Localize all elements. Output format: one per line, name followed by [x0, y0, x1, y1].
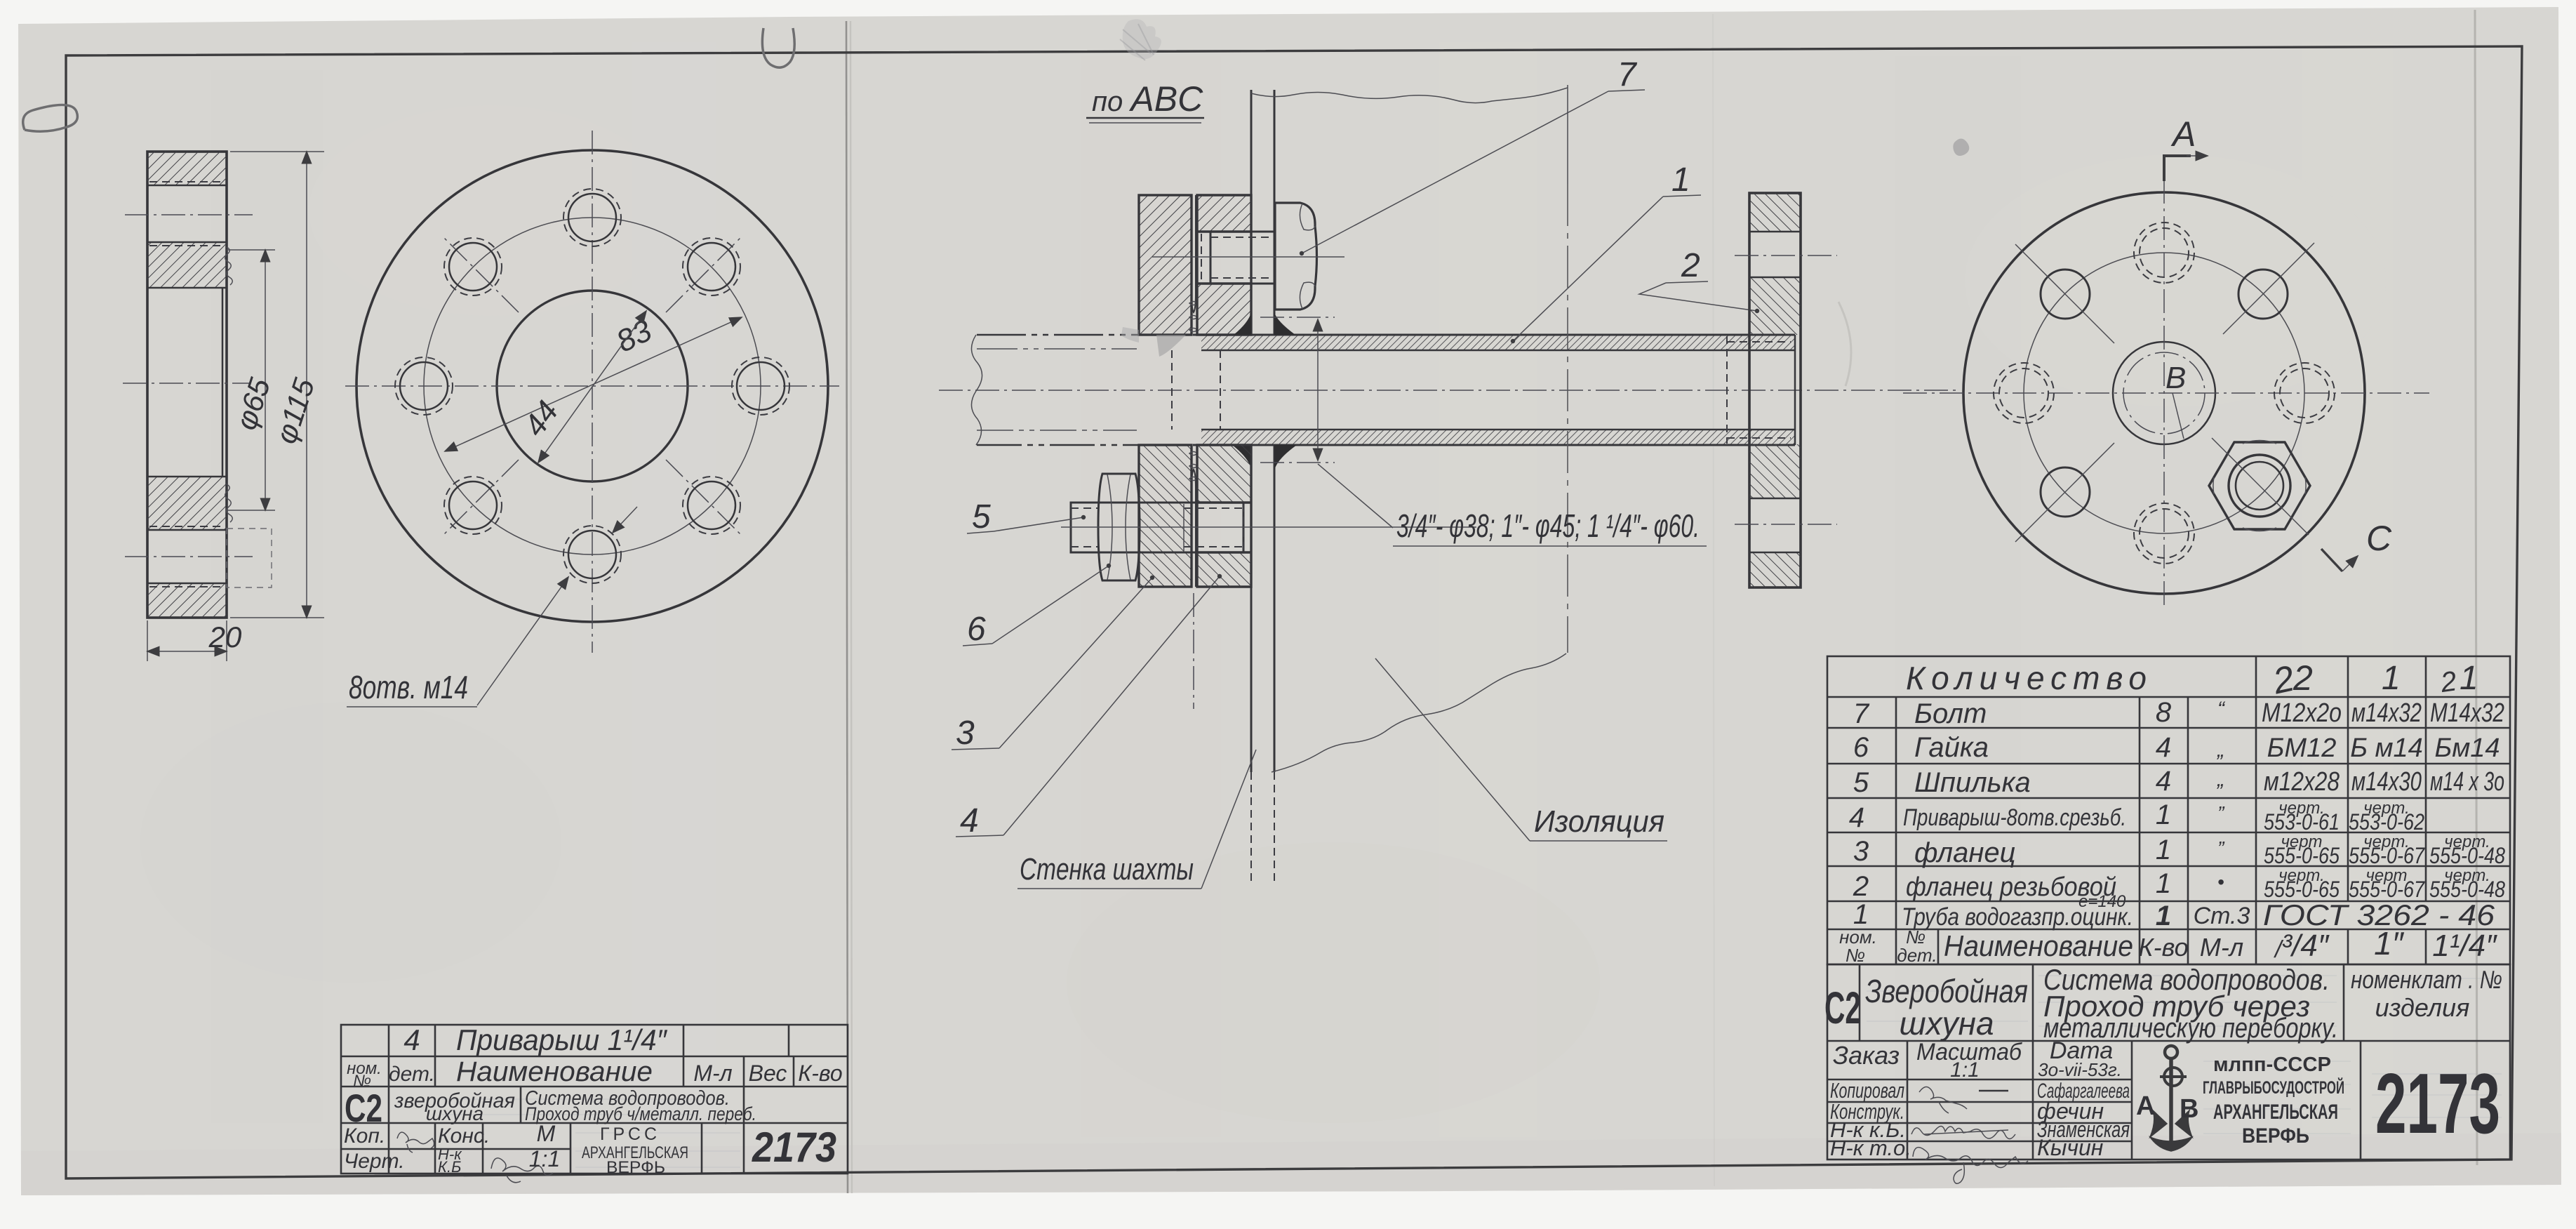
svg-text:Приварыш 1¹/4″: Приварыш 1¹/4″ — [456, 1023, 668, 1056]
svg-text:1: 1 — [1671, 161, 1690, 199]
svg-text:ГЛАВРЫБОСУДОСТРОЙ: ГЛАВРЫБОСУДОСТРОЙ — [2203, 1077, 2344, 1098]
svg-text:фланец: фланец — [1914, 837, 2015, 868]
svg-text:555-0-65: 555-0-65 — [2264, 843, 2340, 868]
svg-text:млпп-СССР: млпп-СССР — [2213, 1054, 2331, 1076]
svg-text:3: 3 — [1853, 836, 1869, 867]
svg-text:2: 2 — [1853, 871, 1869, 902]
svg-text:К-во: К-во — [798, 1061, 842, 1086]
svg-text:ГРСС: ГРСС — [600, 1124, 660, 1144]
svg-text:Вес: Вес — [749, 1061, 787, 1086]
svg-text:A: A — [2136, 1091, 2155, 1121]
svg-text:м14х32: м14х32 — [2351, 698, 2422, 728]
svg-text:Гайка: Гайка — [1914, 732, 1989, 763]
svg-text:Болт: Болт — [1914, 698, 1987, 729]
svg-text:шхуна: шхуна — [1899, 1005, 1994, 1042]
svg-text:1¹/4″: 1¹/4″ — [2432, 929, 2497, 963]
svg-text:М: М — [537, 1121, 556, 1146]
svg-text:1: 1 — [1853, 899, 1869, 930]
svg-text:Ст.3: Ст.3 — [2194, 903, 2250, 929]
svg-text:4: 4 — [960, 802, 979, 839]
svg-text:дет.: дет. — [389, 1063, 435, 1086]
svg-text:7: 7 — [1853, 698, 1870, 729]
svg-text:8: 8 — [2156, 697, 2172, 728]
svg-text:C: C — [2366, 519, 2392, 558]
svg-text:К-во: К-во — [2138, 933, 2188, 962]
svg-text:Стенка шахты: Стенка шахты — [1020, 852, 1194, 886]
svg-text:1: 1 — [2156, 799, 2171, 830]
svg-text:4: 4 — [403, 1023, 420, 1056]
svg-text:Проход труб ч/металл. переб.: Проход труб ч/металл. переб. — [525, 1103, 756, 1124]
svg-text:B: B — [2180, 1094, 2198, 1124]
svg-text:1: 1 — [2460, 660, 2478, 697]
svg-text:Кычин: Кычин — [2037, 1135, 2103, 1160]
svg-text:1: 1 — [2156, 901, 2171, 931]
svg-text:1:1: 1:1 — [1950, 1058, 1980, 1082]
svg-text:555-0-48: 555-0-48 — [2429, 843, 2505, 868]
svg-text:4: 4 — [2156, 766, 2171, 797]
svg-text:5: 5 — [1853, 767, 1869, 798]
svg-text:№: № — [1846, 945, 1865, 966]
svg-text:1: 1 — [2382, 660, 2401, 697]
svg-text:2: 2 — [1681, 247, 1700, 284]
svg-text:М-л: М-л — [2200, 933, 2243, 962]
svg-text:³/4″: ³/4″ — [2282, 929, 2330, 963]
svg-text:1: 1 — [2156, 868, 2171, 899]
svg-text:Конс.: Конс. — [438, 1124, 490, 1148]
svg-text:Наименование: Наименование — [456, 1056, 653, 1087]
svg-text:6: 6 — [1853, 732, 1869, 763]
svg-text:3: 3 — [956, 715, 975, 752]
svg-text:20: 20 — [208, 620, 242, 653]
svg-text:м14х30: м14х30 — [2351, 767, 2422, 797]
svg-text:Коп.: Коп. — [344, 1124, 385, 1148]
svg-text:Зверобойная: Зверобойная — [1865, 973, 2028, 1009]
svg-text:553-0-61: 553-0-61 — [2264, 809, 2340, 835]
svg-text:553-0-62: 553-0-62 — [2349, 809, 2424, 835]
svg-text:Б м14: Б м14 — [2350, 733, 2423, 763]
svg-text:C2: C2 — [345, 1086, 382, 1130]
svg-text:1:1: 1:1 — [529, 1146, 560, 1171]
svg-text:„: „ — [2216, 738, 2224, 762]
svg-text:4: 4 — [1849, 802, 1864, 833]
svg-text:5: 5 — [972, 498, 991, 536]
svg-text:C2: C2 — [1824, 983, 1861, 1033]
svg-text:М12х2о: М12х2о — [2262, 698, 2342, 728]
svg-text:М-л: М-л — [693, 1061, 732, 1086]
svg-text:1″: 1″ — [2374, 925, 2405, 962]
svg-text:Изоляция: Изоляция — [1534, 804, 1664, 839]
svg-text:Бм14: Бм14 — [2434, 733, 2500, 763]
svg-text:Количество: Количество — [1906, 660, 2153, 696]
svg-text:6: 6 — [967, 611, 986, 648]
svg-text:м12х28: м12х28 — [2264, 767, 2340, 797]
svg-text:шхуна: шхуна — [426, 1103, 483, 1124]
svg-text:е=140: е=140 — [2078, 892, 2126, 911]
svg-text:1: 1 — [2156, 835, 2171, 865]
svg-text:3/4″- φ38; 1″- φ45; 1 ¹/4″- φ6: 3/4″- φ38; 1″- φ45; 1 ¹/4″- φ60. — [1396, 507, 1700, 544]
svg-text:Н-к т.о.: Н-к т.о. — [1830, 1136, 1911, 1160]
svg-text:Приварыш-8отв.срезьб.: Приварыш-8отв.срезьб. — [1903, 804, 2126, 831]
svg-text:2173: 2173 — [2375, 1056, 2500, 1151]
svg-text:7: 7 — [1617, 56, 1638, 93]
svg-text:К.Б: К.Б — [438, 1158, 461, 1176]
svg-text:номенклат . №: номенклат . № — [2351, 965, 2502, 994]
svg-text:2173: 2173 — [752, 1124, 836, 1171]
svg-text:м14 х 3о: м14 х 3о — [2430, 767, 2504, 797]
svg-text:М14х32: М14х32 — [2430, 698, 2504, 728]
svg-text:B: B — [2165, 361, 2186, 395]
svg-text:4: 4 — [2156, 732, 2171, 763]
svg-text:A: A — [2170, 114, 2196, 154]
svg-text:555-0-67: 555-0-67 — [2349, 843, 2425, 868]
svg-text:АРХАНГЕЛЬСКАЯ: АРХАНГЕЛЬСКАЯ — [2213, 1101, 2338, 1124]
svg-text:Черт.: Черт. — [344, 1150, 405, 1173]
svg-text:•: • — [2217, 871, 2224, 893]
svg-text:Наименование: Наименование — [1944, 929, 2133, 962]
svg-text:изделия: изделия — [2375, 993, 2470, 1022]
svg-text:8отв. м14: 8отв. м14 — [349, 669, 468, 705]
svg-text:Шпилька: Шпилька — [1914, 767, 2031, 798]
svg-text:3о-vii-53г.: 3о-vii-53г. — [2038, 1059, 2122, 1080]
svg-text:дет.: дет. — [1897, 945, 1937, 966]
svg-text:Заказ: Заказ — [1833, 1041, 1900, 1070]
svg-text:ВЕРФЬ: ВЕРФЬ — [2242, 1124, 2309, 1148]
svg-text:„: „ — [2216, 768, 2224, 791]
svg-text:БМ12: БМ12 — [2267, 733, 2337, 763]
svg-text:ВЕРФЬ: ВЕРФЬ — [606, 1158, 665, 1177]
